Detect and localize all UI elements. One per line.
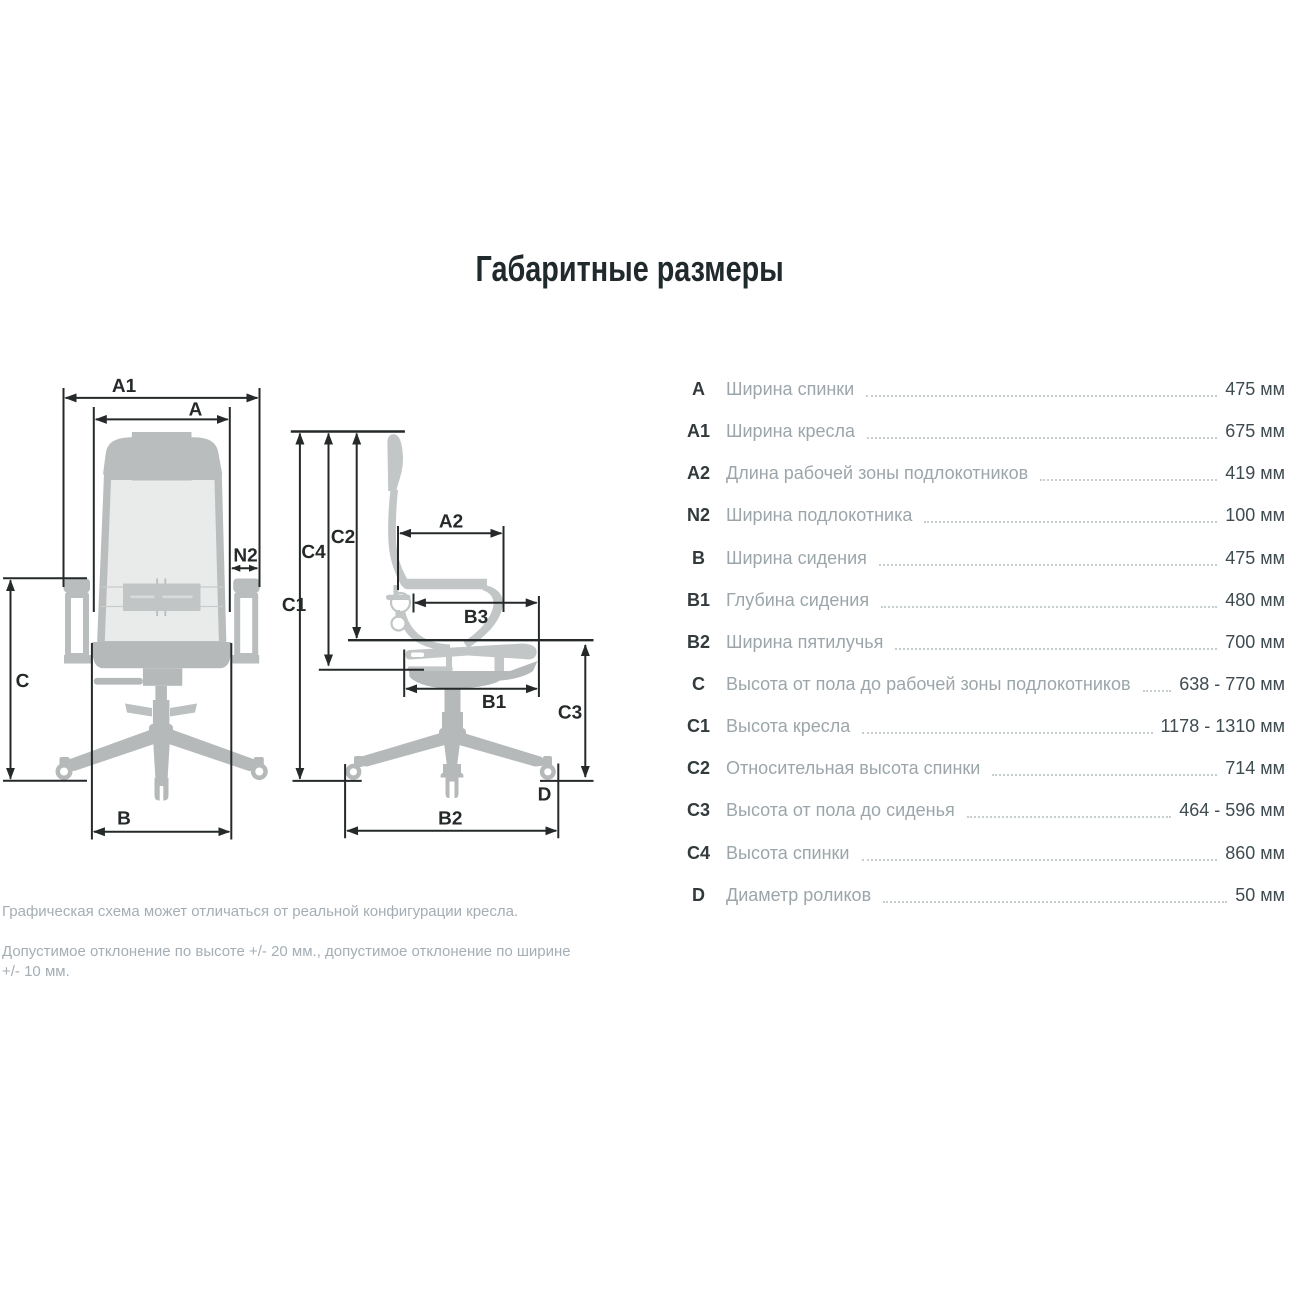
svg-text:A2: A2 (439, 512, 463, 533)
svg-text:N2: N2 (233, 546, 257, 567)
svg-text:B1: B1 (482, 692, 507, 713)
svg-text:C4: C4 (301, 542, 326, 563)
svg-text:A: A (189, 400, 203, 421)
svg-text:B2: B2 (438, 809, 462, 830)
svg-text:B3: B3 (464, 607, 488, 628)
svg-text:A1: A1 (112, 376, 137, 397)
svg-text:D: D (538, 785, 552, 806)
svg-text:C: C (16, 671, 30, 692)
svg-text:C3: C3 (558, 703, 582, 724)
svg-text:C2: C2 (331, 527, 355, 548)
svg-text:B: B (117, 809, 131, 830)
svg-text:C1: C1 (282, 595, 307, 616)
